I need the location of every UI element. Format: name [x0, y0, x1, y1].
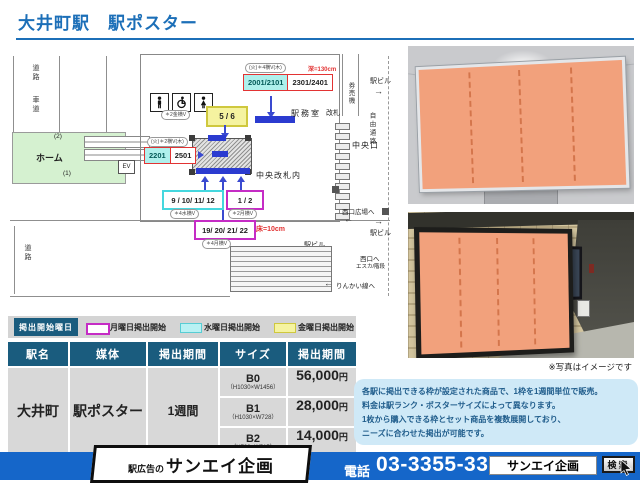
corridor-wall — [10, 296, 230, 297]
legend-swatch-wednesday — [180, 323, 202, 333]
price-b0: 56,000 — [296, 368, 339, 383]
road-line — [59, 56, 60, 134]
price-table: 駅名 媒体 掲出期間 サイズ 掲出期間 大井町 駅ポスター 1週間 B0 （H1… — [8, 342, 356, 456]
map-label-free-passage: 自由通路 — [366, 112, 376, 146]
legend-label-friday: 金曜日掲出開始 — [298, 322, 354, 333]
road-line — [106, 56, 107, 134]
map-label-inside-gate: 中央改札内 — [256, 170, 301, 181]
size-b1-dims: （H1030×W728） — [229, 415, 278, 422]
company-name: サンエイ企画 — [166, 452, 274, 477]
poster-divider — [468, 72, 474, 183]
price-b0-unit: 円 — [339, 373, 348, 383]
size-b0: B0 — [246, 373, 260, 385]
map-label-gate: 改札 — [326, 108, 340, 118]
arrow-left-icon: ← — [324, 278, 333, 288]
frame-note-2001: (火)＊4横V(木) — [245, 63, 286, 73]
legend-label-monday: 月曜日掲出開始 — [110, 322, 166, 333]
map-label-bldg-mid: 駅ビル — [370, 228, 391, 238]
frame-2301-2401: 2301/2401 — [287, 75, 331, 90]
map-label-track1: (1) — [63, 170, 71, 177]
cell-price-b1: 28,000円 — [288, 398, 356, 426]
info-line: 各駅に掲出できる枠が設定された商品で、1枠を1週間単位で販売。 — [362, 385, 630, 399]
poster-divider — [458, 237, 462, 347]
cell-media: 駅ポスター — [70, 368, 146, 456]
map-label-track2: (2) — [54, 133, 62, 140]
pillar — [332, 186, 339, 193]
map-label-lane: 車道 — [30, 96, 40, 114]
poster-frame-2001-2401: 2001/2101 2301/2401 — [243, 74, 333, 91]
col-header-size: サイズ — [220, 342, 286, 366]
frame-2501: 2501 — [170, 148, 196, 163]
frame-note-1-2: ＊2月横V — [228, 209, 257, 219]
wall-line — [342, 54, 343, 116]
arrow-right-icon: → — [374, 86, 383, 96]
map-label-ticket-machines: 券売機 — [345, 82, 355, 105]
west-stairs — [230, 246, 332, 292]
price-b2-unit: 円 — [339, 433, 348, 443]
cell-size-b0: B0 （H1030×W1456） — [220, 368, 286, 396]
legend-bar: 掲出開始曜日 月曜日掲出開始 水曜日掲出開始 金曜日掲出開始 — [8, 316, 356, 338]
photo-poster-board-2 — [408, 212, 634, 358]
company-prefix: 駅広告の — [128, 462, 164, 475]
poster-location-bar — [212, 151, 228, 157]
poster-frame-9-12: 9 / 10/ 11/ 12 — [162, 190, 224, 210]
poster-divider — [496, 238, 500, 347]
standing-sign — [577, 300, 590, 317]
cell-period: 1週間 — [148, 368, 218, 456]
size-b1: B1 — [246, 403, 260, 415]
col-header-price: 掲出期間 — [288, 342, 356, 366]
map-label-west-exit-note: エスカ/階段 — [356, 262, 385, 270]
legend-title: 掲出開始曜日 — [14, 318, 78, 336]
stair-post — [189, 169, 195, 175]
frame-note-2201: (火)＊2横V(木) — [147, 137, 188, 147]
poster-location-bar — [208, 135, 226, 141]
info-line: 1枚から購入できる枠とセット商品を複数展開しており、 — [362, 413, 630, 427]
frame-2001-2101: 2001/2101 — [244, 75, 287, 90]
info-line: ニーズに合わせた掲出が可能です。 — [362, 427, 630, 441]
ticket-gate — [335, 163, 350, 170]
poster-frame-5-6: 5 / 6 — [206, 106, 248, 127]
road-line — [14, 226, 15, 294]
phone-label: 電話 — [344, 461, 370, 480]
col-header-media: 媒体 — [70, 342, 146, 366]
page-title: 大井町駅 駅ポスター — [18, 9, 198, 34]
ticket-gate — [335, 153, 350, 160]
cursor-icon — [620, 460, 636, 476]
arrow-right-icon — [198, 151, 204, 159]
floor-note: 床=10cm — [256, 224, 285, 234]
price-b2: 14,000 — [296, 428, 339, 443]
depth-note: 深=130cm — [308, 64, 336, 73]
poster-divider — [569, 67, 575, 181]
col-header-period: 掲出期間 — [148, 342, 218, 366]
title-underline — [16, 38, 634, 40]
product-info-box: 各駅に掲出できる枠が設定された商品で、1枠を1週間単位で販売。 料金は駅ランク・… — [354, 379, 638, 445]
stair-post — [189, 135, 195, 141]
male-icon — [155, 96, 164, 109]
poster-frame-19-22: 19/ 20/ 21/ 22 — [194, 220, 256, 240]
ticket-gate — [335, 173, 350, 180]
size-b2: B2 — [246, 433, 260, 445]
wall-line — [358, 54, 359, 116]
ticket-gate — [335, 143, 350, 150]
map-label-rinkai: りんかい線へ — [336, 280, 375, 290]
size-b0-dims: （H1030×W1456） — [227, 385, 279, 392]
poster-location-bar — [196, 168, 250, 174]
road-line — [13, 56, 14, 134]
poster-frame-1-2: 1 / 2 — [226, 190, 264, 210]
poster-frame-2201-2501: 2201 2501 — [144, 147, 196, 164]
search-input[interactable] — [489, 456, 597, 475]
col-header-station: 駅名 — [8, 342, 68, 366]
cell-station: 大井町 — [8, 368, 68, 456]
poster-divider — [518, 70, 524, 182]
map-label-platform: ホーム — [36, 151, 63, 164]
map-label-road-upper: 道路 — [30, 64, 40, 82]
info-line: 料金は駅ランク・ポスターサイズによって異なります。 — [362, 399, 630, 413]
poster-board — [414, 227, 574, 358]
cell-price-b0: 56,000円 — [288, 368, 356, 396]
frame-note-9-12: ＊4水横V — [170, 209, 199, 219]
frame-note-19-22: ＊4月横V — [202, 239, 231, 249]
photo-caption: ※写真はイメージです — [420, 361, 632, 373]
passage-boundary — [388, 56, 389, 296]
map-label-station-office: 駅務室 — [291, 108, 321, 119]
company-logo-box: 駅広告の サンエイ企画 — [90, 445, 312, 483]
photo-poster-board-1 — [408, 46, 634, 204]
poster-board — [416, 57, 630, 192]
arrow-left-icon: ← — [344, 214, 353, 224]
footer-bar: 駅広告の サンエイ企画 電話 03-3355-3325 検索 — [0, 452, 640, 480]
ticket-gate — [335, 193, 350, 200]
frame-2201: 2201 — [145, 148, 170, 163]
fire-extinguisher-box — [589, 264, 594, 273]
legend-swatch-monday — [86, 323, 110, 335]
legend-swatch-friday — [274, 323, 296, 333]
stair-post — [245, 135, 251, 141]
price-b1: 28,000 — [296, 398, 339, 413]
arrow-right-icon: → — [374, 216, 383, 226]
price-b1-unit: 円 — [339, 403, 348, 413]
ticket-gate — [335, 123, 350, 130]
cell-size-b1: B1 （H1030×W728） — [220, 398, 286, 426]
poster-divider — [533, 238, 537, 345]
station-map: 道路 車道 (2) ホーム (1) EV 道路 (火)＊4横V(木) 深=130… — [8, 48, 400, 314]
wheelchair-icon — [176, 96, 187, 109]
ticket-gate — [335, 133, 350, 140]
elevator-box: EV — [118, 160, 135, 174]
frame-note-56: ＊2金横V — [161, 110, 190, 120]
poster-location-bar — [255, 116, 295, 123]
map-label-road-lower: 道路 — [22, 244, 32, 262]
pillar — [382, 208, 389, 215]
legend-label-wednesday: 水曜日掲出開始 — [204, 322, 260, 333]
